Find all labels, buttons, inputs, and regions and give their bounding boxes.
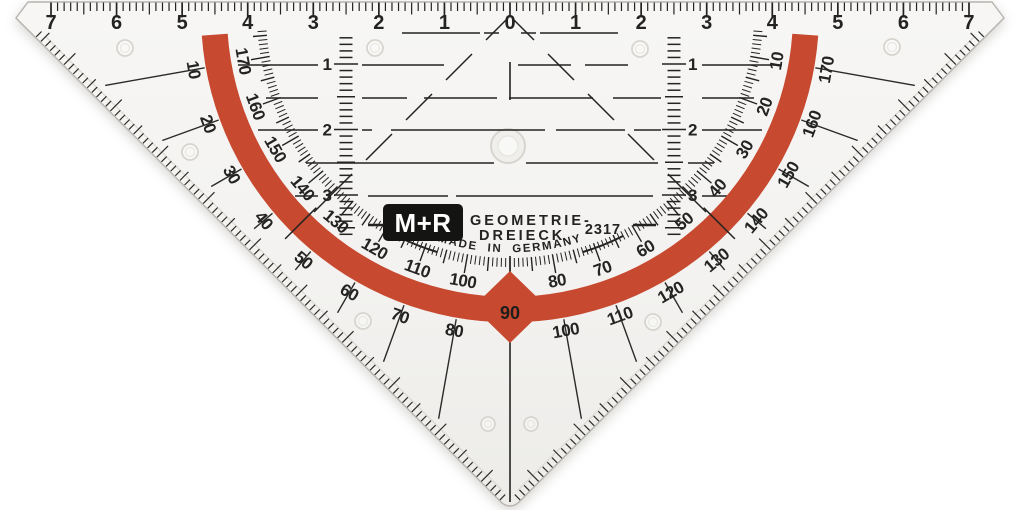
vertical-scale-label: 1 bbox=[323, 55, 332, 74]
ruler-label: 6 bbox=[111, 12, 122, 34]
protractor-outer-label: 80 bbox=[444, 320, 465, 342]
ruler-label: 1 bbox=[439, 12, 450, 34]
ruler-label: 1 bbox=[570, 12, 581, 34]
ruler-label: 3 bbox=[308, 12, 319, 34]
degree-tick bbox=[258, 31, 267, 32]
molded-dot bbox=[645, 314, 661, 330]
ruler-label: 7 bbox=[45, 12, 56, 34]
molded-dot bbox=[481, 417, 495, 431]
brand-logo-text: M+R bbox=[394, 208, 451, 238]
product-name-line1: GEOMETRIE- bbox=[470, 213, 592, 229]
geodreieck-photo: 123123 765432101234567 10203040506070801… bbox=[0, 0, 1020, 510]
vertical-scale-label: 2 bbox=[323, 121, 332, 140]
molded-dot bbox=[884, 39, 900, 55]
ruler-label: 2 bbox=[636, 12, 647, 34]
center-bump-inner bbox=[498, 136, 518, 156]
ruler-label: 6 bbox=[898, 12, 909, 34]
degree-tick bbox=[527, 257, 528, 266]
molded-dot bbox=[524, 417, 538, 431]
molded-dot bbox=[632, 41, 648, 57]
vertical-scale-label: 3 bbox=[688, 186, 697, 205]
protractor-inner-label: 80 bbox=[547, 270, 568, 292]
vertical-scale-label: 1 bbox=[688, 55, 697, 74]
vertical-scale-label: 2 bbox=[688, 121, 697, 140]
geodreieck-scene: 123123 765432101234567 10203040506070801… bbox=[0, 0, 1020, 510]
protractor-inner-label: 10 bbox=[766, 51, 788, 72]
molded-dot bbox=[355, 313, 371, 329]
ruler-label: 0 bbox=[504, 12, 515, 34]
molded-dot bbox=[117, 40, 133, 56]
molded-dot bbox=[367, 40, 383, 56]
ruler-label: 2 bbox=[373, 12, 384, 34]
ruler-label: 4 bbox=[767, 12, 779, 34]
ruler-label: 7 bbox=[963, 12, 974, 34]
ruler-label: 5 bbox=[177, 12, 188, 34]
ruler-label: 3 bbox=[701, 12, 712, 34]
apex-90-label: 90 bbox=[500, 303, 520, 323]
molded-dot bbox=[182, 144, 198, 160]
model-number: 2317 bbox=[585, 222, 621, 238]
protractor-outer-label: 10 bbox=[182, 59, 204, 80]
triangle-group: 123123 765432101234567 10203040506070801… bbox=[16, 2, 1004, 506]
ruler-label: 5 bbox=[832, 12, 843, 34]
vertical-scale-label: 3 bbox=[323, 186, 332, 205]
product-name-line2: DREIECK bbox=[479, 228, 565, 244]
degree-tick bbox=[753, 31, 762, 32]
degree-tick bbox=[492, 257, 493, 266]
ruler-label: 4 bbox=[242, 12, 254, 34]
